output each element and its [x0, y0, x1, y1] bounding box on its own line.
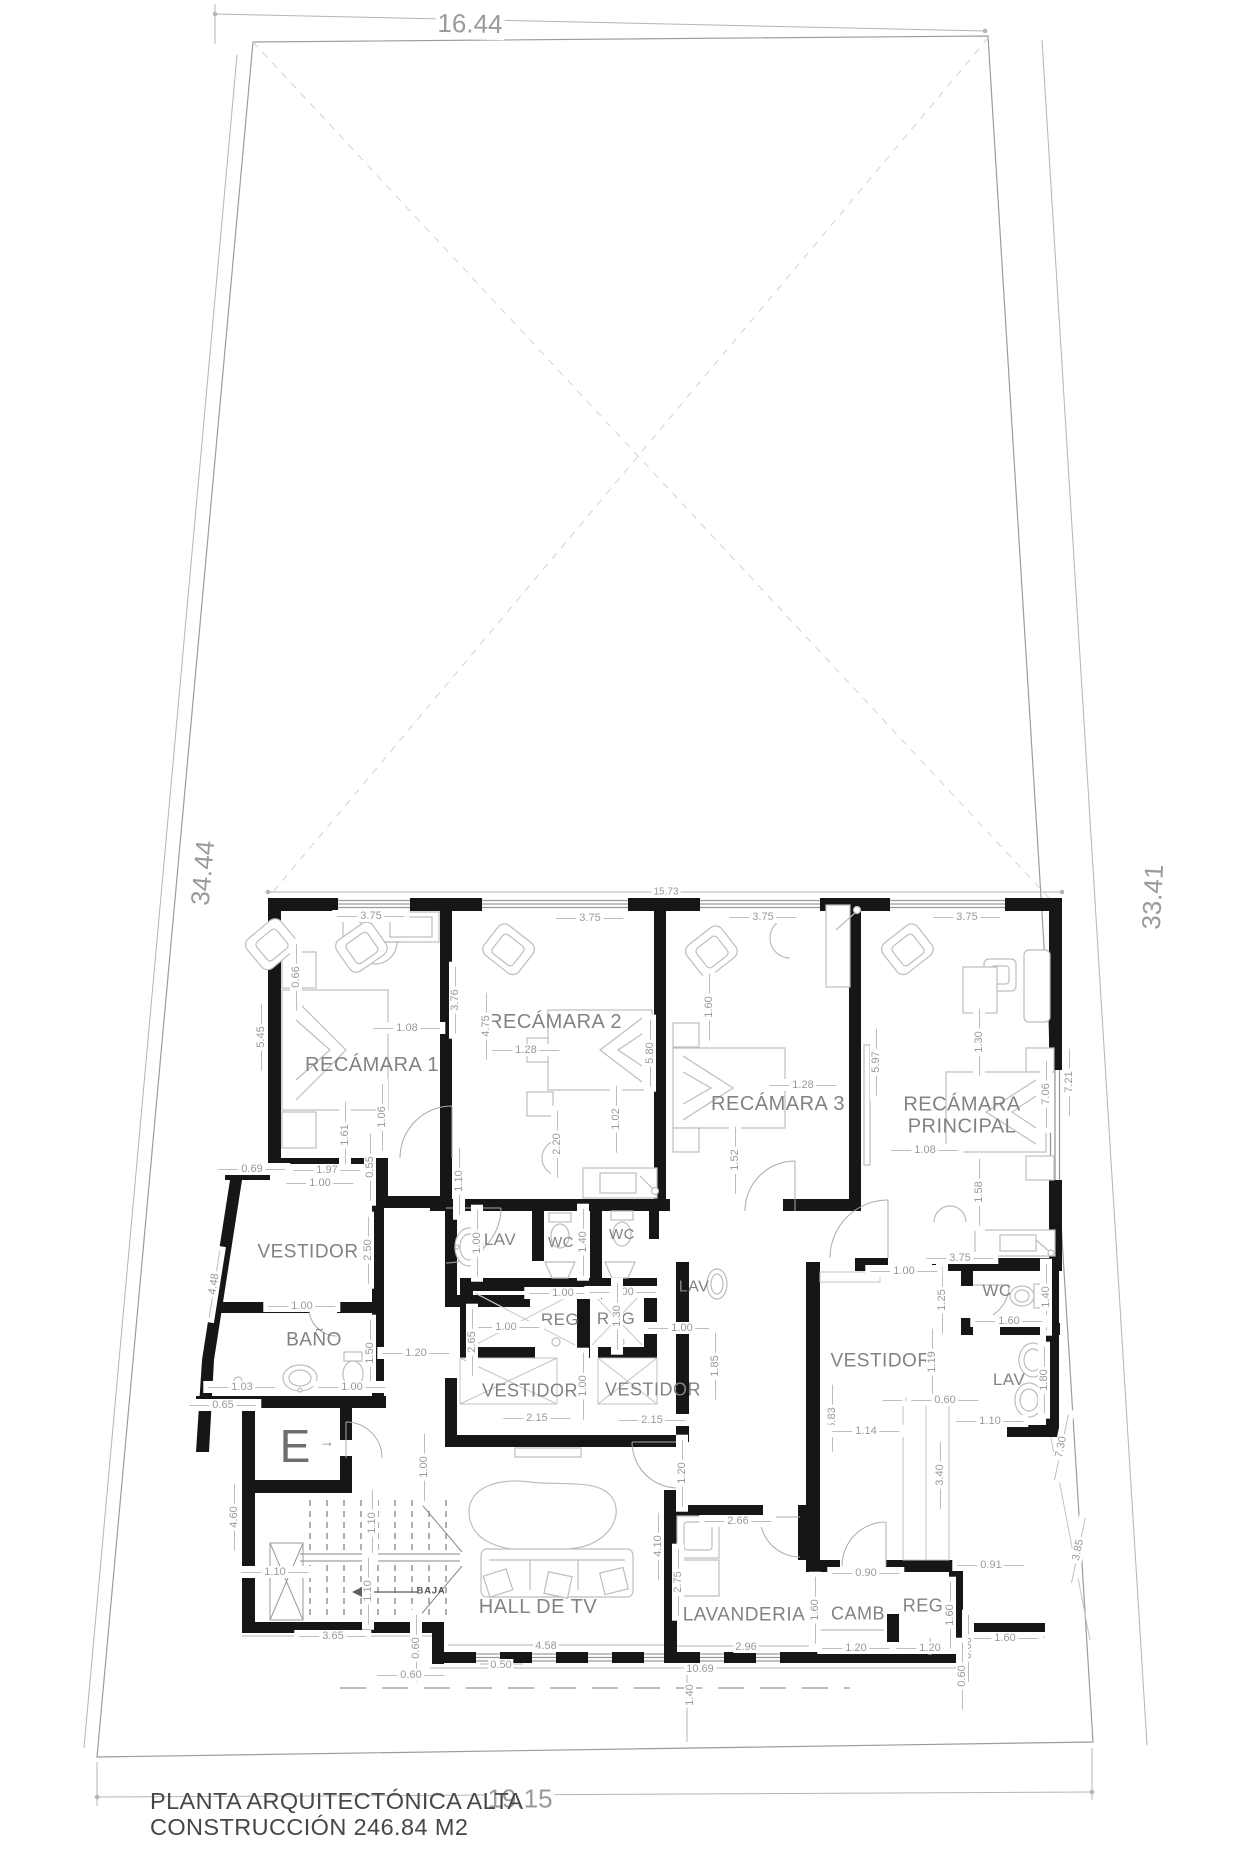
bed-principal: [946, 1048, 1054, 1180]
lav-right-sinks: [1015, 1343, 1047, 1417]
washer-dryer: [677, 1516, 719, 1596]
sofa: [481, 1549, 633, 1598]
dresser-principal: [934, 1206, 1055, 1256]
mirror-recamara3: [864, 1045, 870, 1165]
floor-plan-drawing: [0, 0, 1234, 1873]
lav-center-sink: [455, 1228, 483, 1266]
armchair-recamara3: [682, 923, 740, 980]
bed-recamara1: [282, 952, 388, 1148]
stairs: [270, 1500, 462, 1620]
armchair-principal: [878, 921, 936, 978]
desk-recamara3: [770, 905, 861, 987]
tv-console: [515, 1448, 581, 1457]
rug: [469, 1481, 616, 1551]
shower-bottom-right: [926, 1638, 934, 1654]
construction-diagonal-lines: [253, 38, 1049, 898]
bath-drain: [234, 1377, 242, 1385]
desk-recamara2: [542, 1140, 659, 1198]
table-principal: [963, 967, 997, 1013]
wc-right: [1010, 1284, 1044, 1308]
bathroom-sink: [283, 1365, 317, 1392]
title-block: PLANTA ARQUITECTÓNICA ALTA CONSTRUCCIÓN …: [150, 1788, 523, 1841]
bed-recamara3: [673, 1023, 785, 1152]
sofa-principal: [1024, 950, 1050, 1022]
bed-recamara2: [527, 1010, 652, 1116]
plan-title: PLANTA ARQUITECTÓNICA ALTA: [150, 1788, 523, 1814]
floor-plan-canvas: RECÁMARA 1RECÁMARA 2RECÁMARA 3RECÁMARA P…: [0, 0, 1234, 1873]
plan-subtitle: CONSTRUCCIÓN 246.84 M2: [150, 1814, 523, 1840]
armchair-recamara2-b: [480, 921, 538, 978]
bathroom-toilet: [343, 1352, 363, 1387]
wc-center-2: [611, 1211, 633, 1246]
lav-nook-sink: [707, 1269, 727, 1299]
elevator-arrow-icon: →: [320, 1434, 335, 1451]
stairs-direction-label: BAJA: [416, 1586, 445, 1597]
wc-center-1: [549, 1213, 571, 1248]
elevator-label: E: [280, 1419, 311, 1473]
